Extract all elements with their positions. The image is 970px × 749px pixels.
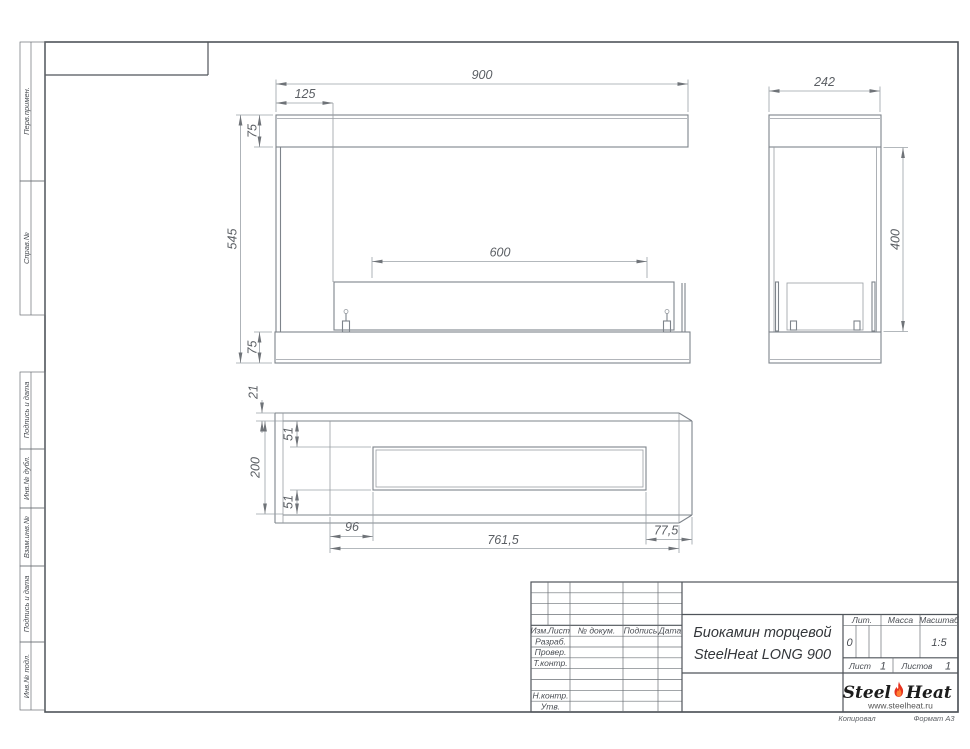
- stamp-vzam-inv: Взам.инв.№: [22, 516, 31, 558]
- tb-col-data: Дата: [658, 626, 682, 636]
- dim-front-total-height: 545: [226, 229, 240, 250]
- tb-col-podpis: Подпись: [624, 626, 658, 636]
- tb-col-docnum: № докум.: [578, 626, 615, 636]
- tb-row-nkontr: Н.контр.: [533, 691, 569, 701]
- dim-front-total-width: 900: [472, 68, 493, 82]
- sheet-frame: [45, 42, 958, 712]
- front-view-dimensions: 900 125 75 545 75 600: [226, 68, 689, 363]
- copied-label: Копировал: [838, 714, 876, 723]
- stamp-podpis-data-2: Подпись и дата: [22, 576, 31, 633]
- dim-plan-inset-bottom: 51: [282, 495, 296, 509]
- tb-scale-label: Масштаб: [919, 615, 960, 625]
- dim-front-base-height: 75: [246, 341, 260, 355]
- drawing-frame: [45, 42, 958, 712]
- tb-sheets-label: Листов: [901, 661, 934, 671]
- stamp-inv-dubl: Инв.№ дубл.: [22, 456, 31, 500]
- plan-view-dimensions: 21 200 51 51 96 77,5 761,5: [247, 385, 693, 553]
- tb-row-utv: Утв.: [540, 702, 560, 712]
- tb-row-razrab: Разраб.: [535, 637, 566, 647]
- front-view: [275, 103, 690, 363]
- dim-plan-depth: 200: [249, 457, 263, 479]
- document-title-line2: SteelHeat LONG 900: [694, 647, 831, 663]
- dim-side-depth: 242: [813, 75, 835, 89]
- dim-front-lintel-height: 75: [246, 124, 260, 138]
- left-margin-stamps: Перв.примен. Справ.№ Подпись и дата Инв.…: [20, 42, 45, 710]
- dim-side-opening-height: 400: [889, 229, 903, 250]
- drawing-sheet: Перв.примен. Справ.№ Подпись и дата Инв.…: [0, 0, 970, 749]
- logo-url: www.steelheat.ru: [867, 701, 933, 711]
- tb-lit-value: 0: [846, 637, 853, 649]
- side-view-dimensions: 242 400: [769, 75, 908, 332]
- dim-front-burner-width: 600: [490, 246, 511, 260]
- title-block: Изм. Лист № докум. Подпись Дата Разраб. …: [530, 582, 960, 712]
- flame-icon: [895, 682, 904, 697]
- document-title-line1: Биокамин торцевой: [693, 625, 831, 641]
- tb-sheet-label: Лист: [848, 661, 871, 671]
- side-view: [769, 115, 881, 363]
- dim-plan-left-offset: 96: [345, 520, 359, 534]
- stamp-perv-primen: Перв.примен.: [22, 87, 31, 135]
- steelheat-logo: Steel Heat www.steelheat.ru: [843, 682, 952, 711]
- stamp-inv-podl: Инв.№ подл.: [22, 654, 31, 698]
- dim-plan-inset-top: 51: [282, 427, 296, 441]
- tb-row-prover: Провер.: [535, 647, 567, 657]
- stamp-podpis-data-1: Подпись и дата: [22, 382, 31, 439]
- frame-footer: Копировал Формат А3: [838, 714, 955, 723]
- drawing-canvas: Перв.примен. Справ.№ Подпись и дата Инв.…: [0, 0, 970, 749]
- tb-mass-label: Масса: [888, 615, 913, 625]
- plan-view: [275, 413, 692, 523]
- tb-lit-label: Лит.: [851, 615, 872, 625]
- stamp-sprav-no: Справ.№: [22, 232, 31, 264]
- tb-row-tkontr: Т.контр.: [533, 658, 567, 668]
- tb-sheets-value: 1: [945, 661, 951, 673]
- dim-plan-wall-thickness: 21: [247, 385, 261, 400]
- tb-col-list: Лист: [547, 626, 570, 636]
- format-label: Формат А3: [913, 714, 955, 723]
- tb-sheet-value: 1: [880, 661, 886, 673]
- dim-front-left-offset: 125: [295, 87, 316, 101]
- dim-plan-right-offset: 77,5: [654, 524, 678, 538]
- dim-plan-length: 761,5: [487, 533, 518, 547]
- tb-scale-value: 1:5: [931, 637, 947, 649]
- tb-col-izm: Изм.: [530, 626, 548, 636]
